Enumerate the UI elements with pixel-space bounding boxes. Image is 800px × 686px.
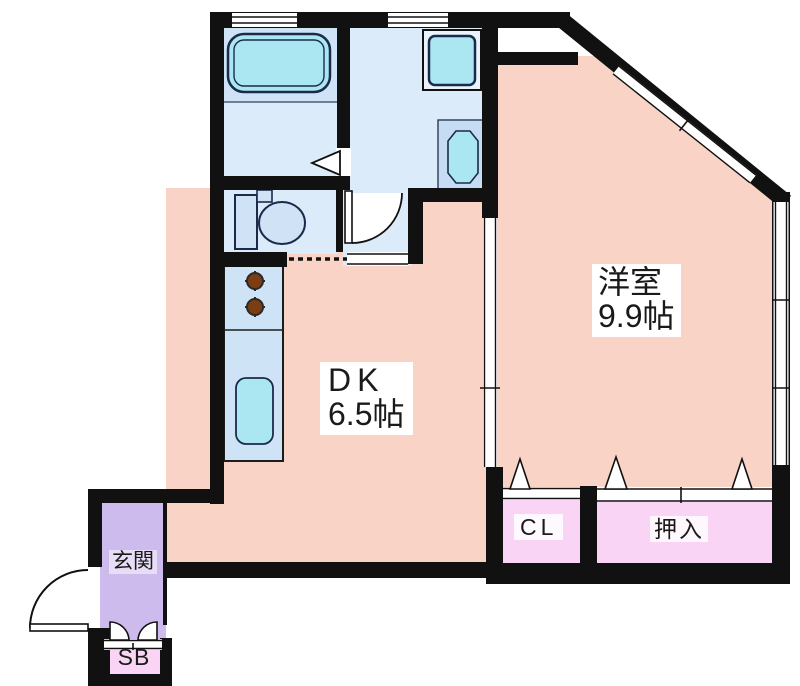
floor-plan-drawing (0, 0, 800, 686)
opening-washroom-dk (347, 252, 408, 266)
dining-kitchen-name: DK (328, 364, 405, 398)
shoe-box-label: SB (106, 645, 162, 669)
wall-closet-left (486, 467, 503, 577)
entrance-label: 玄関 (109, 550, 157, 574)
washing-machine (423, 30, 481, 90)
futon-closet-label: 押入 (650, 516, 708, 542)
wall-under-basin (408, 188, 490, 202)
wall-entrance-top (88, 489, 214, 503)
western-room-label: 洋室 9.9帖 (592, 264, 681, 337)
western-room-size: 9.9帖 (598, 300, 675, 334)
wall-sb-bottom (95, 674, 172, 686)
floor-plan: 洋室 9.9帖 DK 6.5帖 CL 押入 玄関 SB (0, 0, 800, 686)
washbasin (438, 120, 488, 190)
kitchen-counter (224, 260, 283, 461)
wall-toilet-bottom (210, 252, 287, 267)
wall-entrance-dk-line (163, 503, 167, 625)
window-top-2 (388, 13, 448, 27)
dining-kitchen-label: DK 6.5帖 (320, 362, 413, 435)
wall-western-room-top (482, 52, 578, 65)
wall-bottom-dk (166, 562, 503, 578)
closet-label: CL (514, 514, 563, 540)
wall-toilet-right (336, 190, 343, 252)
wall-entrance-left (88, 503, 102, 567)
kitchen-sink (236, 378, 273, 444)
wall-closet-divider (580, 486, 597, 565)
window-top-1 (232, 13, 297, 27)
dining-kitchen-size: 6.5帖 (328, 398, 405, 432)
wall-bath-toilet (210, 176, 350, 190)
western-room-name: 洋室 (598, 266, 675, 300)
bathtub (228, 34, 330, 92)
window-right (772, 202, 790, 465)
wall-nook (408, 202, 423, 264)
wall-bottom-closets (486, 563, 790, 584)
entrance-door (30, 570, 88, 631)
sliding-partition-dk (480, 218, 500, 467)
